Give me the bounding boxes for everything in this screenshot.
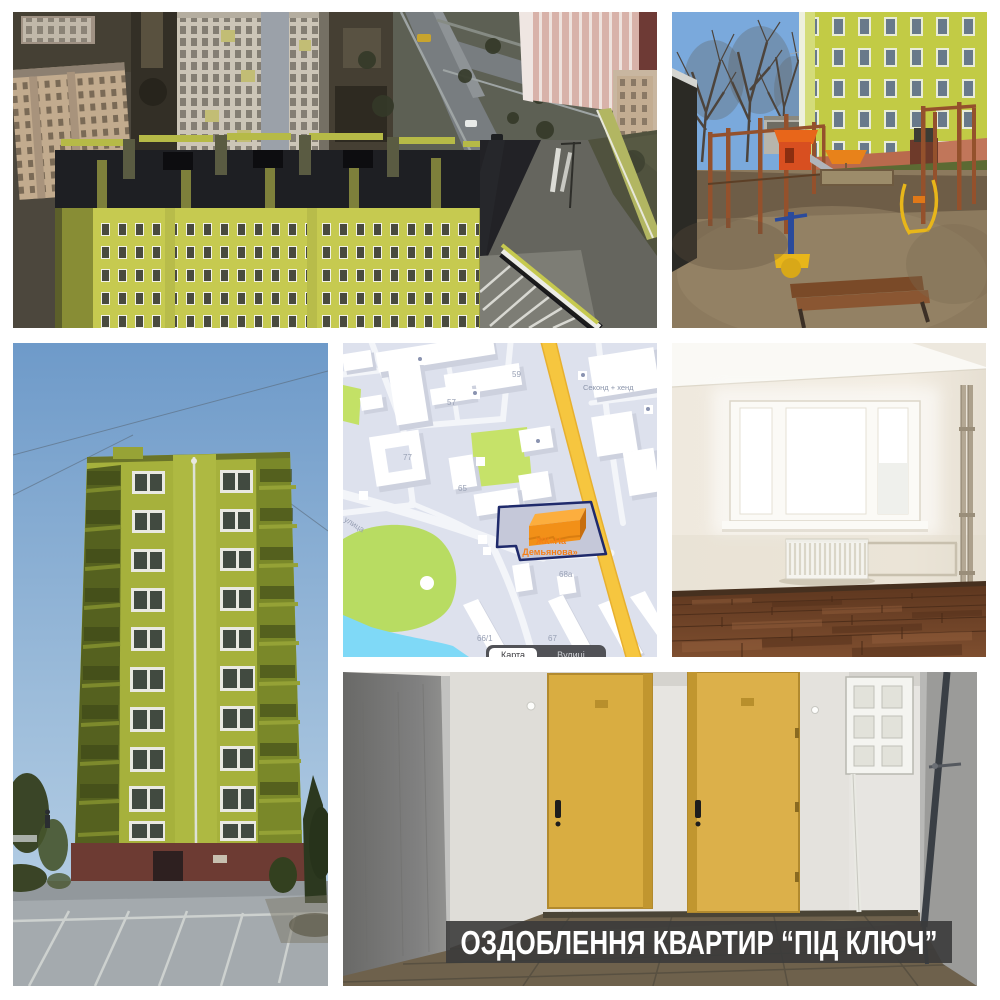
svg-text:Карта: Карта (501, 650, 525, 657)
svg-text:67: 67 (548, 634, 557, 643)
svg-text:Демьянова»: Демьянова» (522, 547, 577, 557)
svg-text:77: 77 (403, 453, 412, 462)
svg-text:59: 59 (512, 370, 521, 379)
svg-text:68а: 68а (559, 570, 573, 579)
svg-text:Секонд + хенд: Секонд + хенд (583, 383, 634, 392)
svg-text:Вулиці: Вулиці (557, 650, 585, 657)
svg-text:57: 57 (447, 398, 456, 407)
svg-text:65: 65 (458, 484, 467, 493)
svg-text:ЖК«На: ЖК«На (535, 536, 567, 546)
svg-text:ОЗДОБЛЕННЯ КВАРТИР “ПІД КЛЮЧ”: ОЗДОБЛЕННЯ КВАРТИР “ПІД КЛЮЧ” (461, 924, 938, 961)
svg-text:66/1: 66/1 (477, 634, 493, 643)
